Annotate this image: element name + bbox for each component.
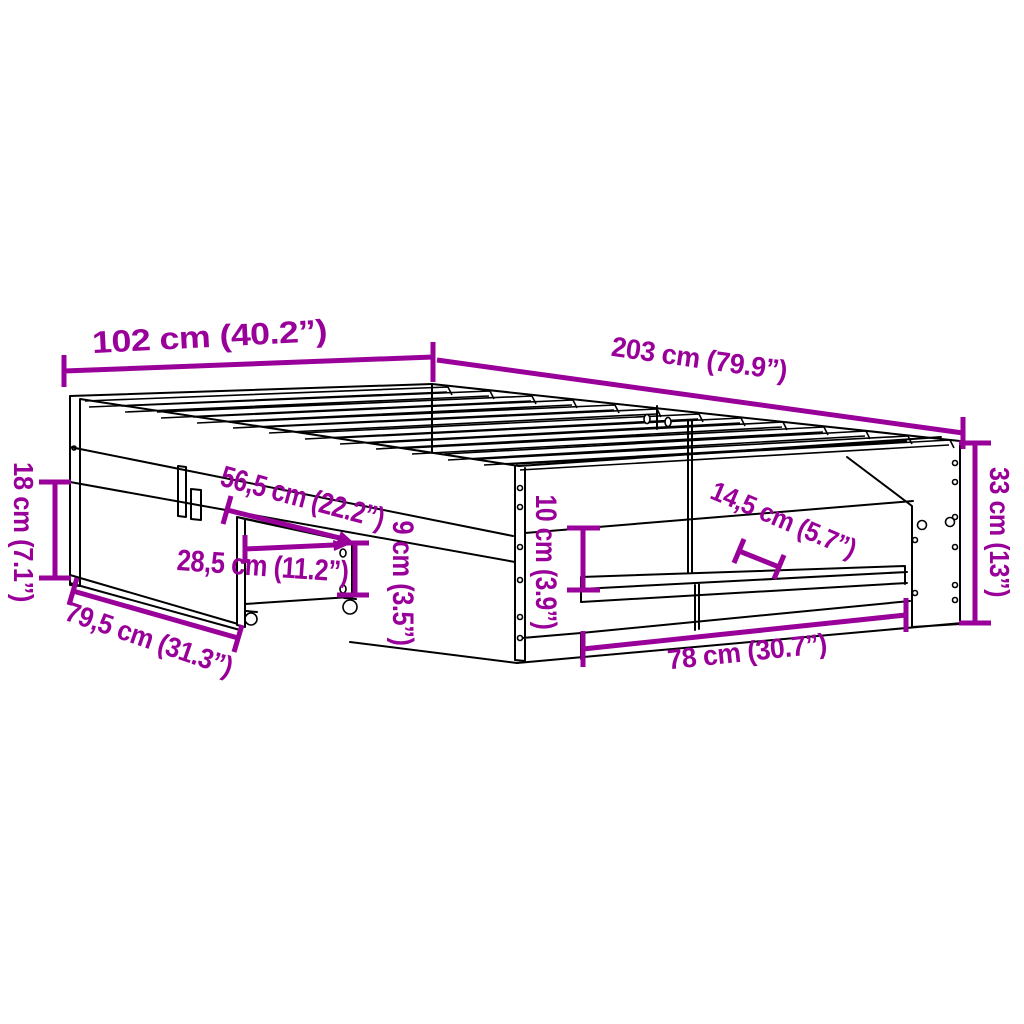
dimension-drawer-width: 79,5 cm (31.3”) bbox=[61, 578, 242, 682]
corner-post-screw-holes bbox=[518, 486, 523, 641]
dimension-under-bed-clearance: 10 cm (3.9”) bbox=[529, 495, 600, 630]
dimension-under-bed-clearance-label: 10 cm (3.9”) bbox=[529, 495, 562, 630]
dimension-headboard-height: 18 cm (7.1”) bbox=[8, 462, 71, 602]
dimension-length-label: 203 cm (79.9”) bbox=[610, 331, 790, 386]
drawer-rail-brackets bbox=[178, 466, 201, 520]
rail-screw-hole bbox=[665, 418, 671, 427]
dimension-storage-opening-width-label: 78 cm (30.7”) bbox=[666, 628, 828, 676]
dimension-frame-height-label: 33 cm (13”) bbox=[984, 467, 1015, 597]
diagram-canvas: 102 cm (40.2”) 203 cm (79.9”) 18 cm (7.1… bbox=[0, 0, 1024, 1024]
slats bbox=[85, 387, 954, 470]
dimension-shelf-depth-label: 14,5 cm (5.7”) bbox=[706, 476, 860, 564]
caster-wheel bbox=[343, 600, 357, 614]
bed-frame-diagram: 102 cm (40.2”) 203 cm (79.9”) 18 cm (7.1… bbox=[0, 0, 1024, 1024]
dimension-width-label: 102 cm (40.2”) bbox=[91, 313, 328, 360]
dimension-width: 102 cm (40.2”) bbox=[64, 313, 433, 387]
dimension-shelf-depth: 14,5 cm (5.7”) bbox=[706, 476, 860, 579]
caster-wheel bbox=[245, 613, 257, 625]
dimension-drawer-height-label: 9 cm (3.5”) bbox=[386, 521, 419, 646]
dimension-drawer-width-label: 79,5 cm (31.3”) bbox=[61, 596, 237, 682]
dimension-frame-height: 33 cm (13”) bbox=[959, 443, 1015, 623]
dimension-storage-opening-width: 78 cm (30.7”) bbox=[583, 598, 906, 675]
end-post-screw-holes bbox=[913, 461, 958, 603]
dimension-headboard-height-label: 18 cm (7.1”) bbox=[8, 462, 39, 602]
rail-screw-hole bbox=[644, 415, 650, 424]
